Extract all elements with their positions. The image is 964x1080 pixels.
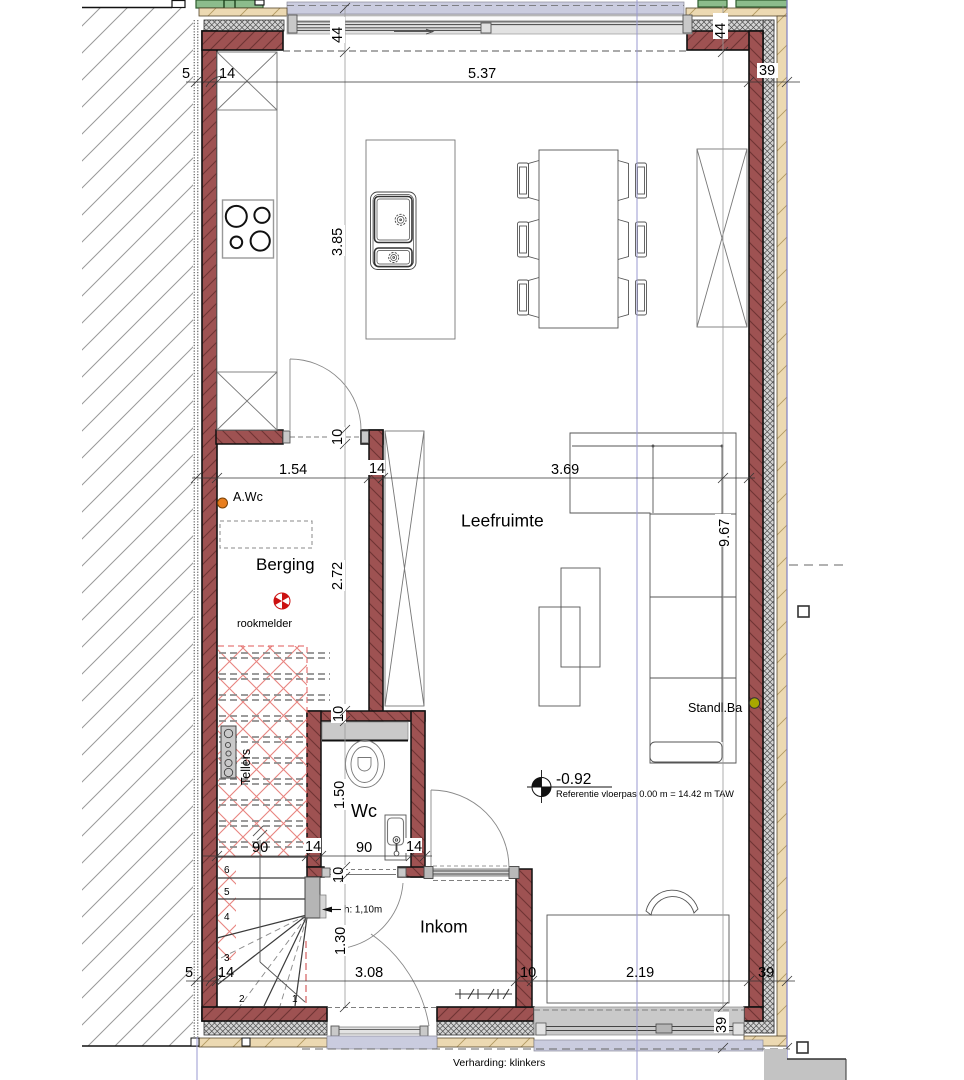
svg-text:Standl.Ba: Standl.Ba	[688, 701, 742, 715]
svg-text:h: 1,10m: h: 1,10m	[344, 905, 382, 916]
svg-text:90: 90	[252, 840, 268, 856]
svg-text:1: 1	[292, 994, 298, 1005]
svg-text:2.19: 2.19	[626, 965, 654, 981]
svg-text:14: 14	[369, 461, 385, 477]
svg-text:4: 4	[224, 912, 230, 923]
svg-text:1.50: 1.50	[332, 781, 348, 809]
svg-text:3.85: 3.85	[330, 228, 346, 256]
svg-text:A.Wc: A.Wc	[233, 490, 263, 504]
svg-text:9.67: 9.67	[717, 519, 733, 547]
svg-text:10: 10	[331, 867, 347, 883]
svg-text:44: 44	[330, 27, 346, 43]
svg-text:14: 14	[219, 66, 235, 82]
svg-text:Leefruimte: Leefruimte	[461, 511, 544, 531]
svg-text:Wc: Wc	[351, 801, 377, 821]
svg-text:Berging: Berging	[256, 555, 315, 574]
svg-text:2: 2	[239, 994, 245, 1005]
svg-text:Tellers: Tellers	[239, 749, 253, 785]
svg-text:rookmelder: rookmelder	[237, 618, 292, 630]
svg-text:5: 5	[182, 66, 190, 82]
svg-text:3: 3	[224, 953, 230, 964]
svg-text:1.30: 1.30	[333, 927, 349, 955]
svg-text:14: 14	[305, 839, 321, 855]
svg-text:90: 90	[356, 840, 372, 856]
svg-text:10: 10	[520, 965, 536, 981]
svg-text:10: 10	[331, 706, 347, 722]
svg-text:39: 39	[758, 965, 774, 981]
svg-text:3.69: 3.69	[551, 462, 579, 478]
svg-text:1.54: 1.54	[279, 462, 307, 478]
svg-text:6: 6	[224, 865, 230, 876]
svg-text:5: 5	[224, 887, 230, 898]
svg-text:3.08: 3.08	[355, 965, 383, 981]
svg-text:39: 39	[759, 63, 775, 79]
svg-text:14: 14	[406, 839, 422, 855]
svg-text:14: 14	[218, 965, 234, 981]
svg-text:Referentie vloerpas 0.00 m = 1: Referentie vloerpas 0.00 m = 14.42 m TAW	[556, 789, 734, 799]
svg-text:Inkom: Inkom	[420, 917, 468, 937]
svg-text:44: 44	[713, 23, 729, 39]
svg-text:-0.92: -0.92	[556, 771, 591, 788]
svg-text:2.72: 2.72	[330, 562, 346, 590]
svg-text:39: 39	[714, 1017, 730, 1033]
svg-text:5: 5	[185, 965, 193, 981]
svg-text:5.37: 5.37	[468, 66, 496, 82]
svg-text:Verharding: klinkers: Verharding: klinkers	[453, 1057, 545, 1069]
